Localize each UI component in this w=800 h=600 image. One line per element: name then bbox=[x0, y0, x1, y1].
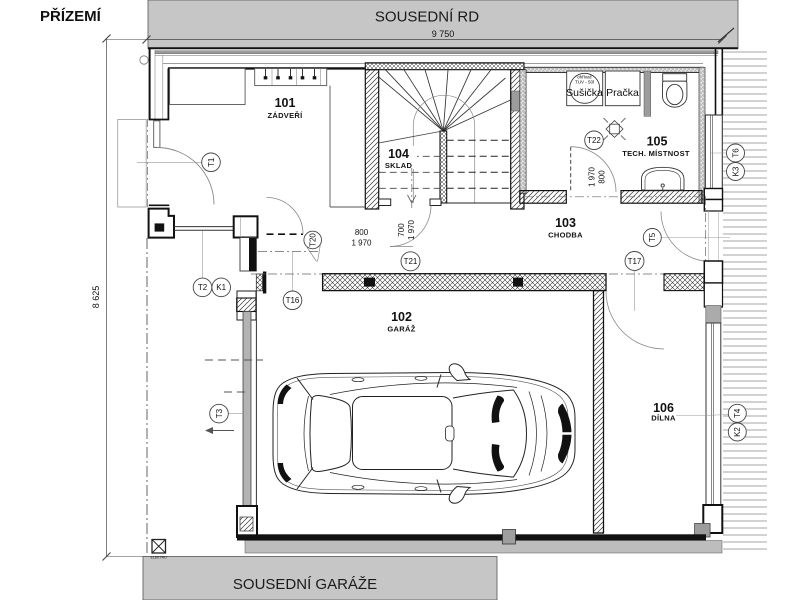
svg-text:T17: T17 bbox=[628, 257, 642, 266]
svg-text:SOUSEDNÍ GARÁŽE: SOUSEDNÍ GARÁŽE bbox=[233, 576, 377, 593]
svg-text:T22: T22 bbox=[587, 136, 601, 145]
svg-text:1 970: 1 970 bbox=[407, 219, 416, 240]
svg-text:DÍLNA: DÍLNA bbox=[651, 414, 676, 423]
svg-text:800: 800 bbox=[355, 228, 369, 237]
svg-text:SOUSEDNÍ RD: SOUSEDNÍ RD bbox=[375, 9, 479, 26]
svg-text:TUV - 50l: TUV - 50l bbox=[575, 80, 594, 85]
svg-text:T6: T6 bbox=[731, 148, 740, 158]
svg-text:ZÁDVEŘÍ: ZÁDVEŘÍ bbox=[267, 111, 303, 120]
svg-text:9 750: 9 750 bbox=[432, 29, 455, 39]
svg-text:8 625: 8 625 bbox=[91, 286, 101, 309]
svg-text:K3: K3 bbox=[731, 166, 740, 176]
svg-text:700: 700 bbox=[397, 223, 406, 237]
svg-text:SKLAD: SKLAD bbox=[385, 161, 413, 170]
svg-text:101: 101 bbox=[275, 96, 296, 110]
svg-text:104: 104 bbox=[388, 147, 409, 161]
svg-text:Sušička: Sušička bbox=[566, 87, 603, 99]
svg-text:102: 102 bbox=[391, 310, 412, 324]
svg-text:ELEKTRO: ELEKTRO bbox=[151, 556, 168, 560]
svg-text:T1: T1 bbox=[207, 157, 216, 167]
svg-text:103: 103 bbox=[555, 216, 576, 230]
svg-text:TECH. MÍSTNOST: TECH. MÍSTNOST bbox=[622, 149, 690, 158]
svg-text:Pračka: Pračka bbox=[606, 87, 639, 99]
svg-text:105: 105 bbox=[647, 135, 668, 149]
svg-text:T20: T20 bbox=[309, 233, 318, 247]
svg-text:800: 800 bbox=[598, 170, 607, 184]
svg-text:T4: T4 bbox=[733, 408, 742, 418]
svg-text:T3: T3 bbox=[215, 408, 224, 418]
svg-text:T5: T5 bbox=[648, 232, 657, 242]
svg-text:GARÁŽ: GARÁŽ bbox=[387, 325, 415, 334]
svg-text:T2: T2 bbox=[198, 283, 208, 292]
svg-text:K1: K1 bbox=[216, 283, 226, 292]
svg-text:1 970: 1 970 bbox=[588, 166, 597, 187]
svg-text:T16: T16 bbox=[286, 296, 300, 305]
svg-text:CHODBA: CHODBA bbox=[548, 231, 583, 240]
svg-text:T21: T21 bbox=[404, 257, 418, 266]
svg-text:PŘÍZEMÍ: PŘÍZEMÍ bbox=[40, 7, 102, 25]
svg-text:1 970: 1 970 bbox=[351, 239, 372, 248]
svg-text:K2: K2 bbox=[733, 427, 742, 437]
